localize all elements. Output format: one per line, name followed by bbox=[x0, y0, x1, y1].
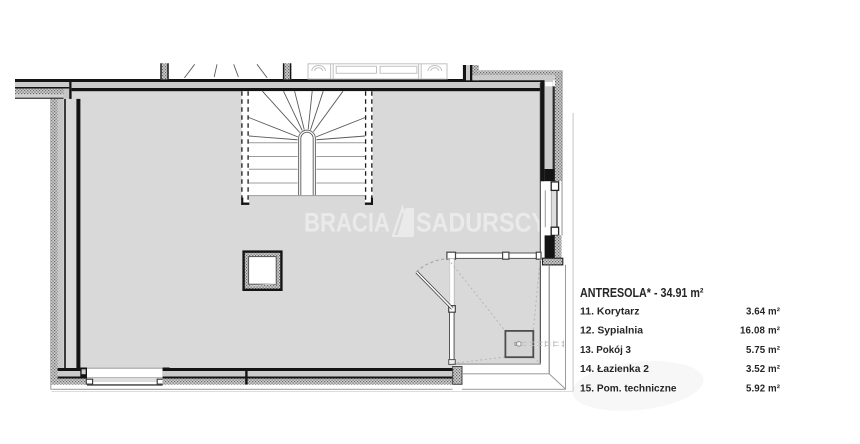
svg-text:12. Sypialnia: 12. Sypialnia bbox=[580, 326, 644, 337]
svg-text:13. Pokój 3: 13. Pokój 3 bbox=[580, 345, 632, 356]
svg-text:14. Łazienka 2: 14. Łazienka 2 bbox=[580, 364, 649, 375]
svg-text:3.64 m²: 3.64 m² bbox=[746, 307, 781, 318]
svg-text:16.08 m²: 16.08 m² bbox=[740, 326, 781, 337]
svg-text:3.52 m²: 3.52 m² bbox=[746, 364, 781, 375]
svg-text:SADURSCY: SADURSCY bbox=[416, 207, 547, 237]
svg-text:BRACIA: BRACIA bbox=[304, 207, 390, 237]
svg-text:11. Korytarz: 11. Korytarz bbox=[580, 307, 640, 318]
svg-text:5.75 m²: 5.75 m² bbox=[746, 345, 781, 356]
svg-text:15. Pom. techniczne: 15. Pom. techniczne bbox=[580, 383, 677, 394]
svg-text:ANTRESOLA* - 34.91 m²: ANTRESOLA* - 34.91 m² bbox=[580, 285, 704, 300]
svg-text:5.92 m²: 5.92 m² bbox=[746, 383, 781, 394]
